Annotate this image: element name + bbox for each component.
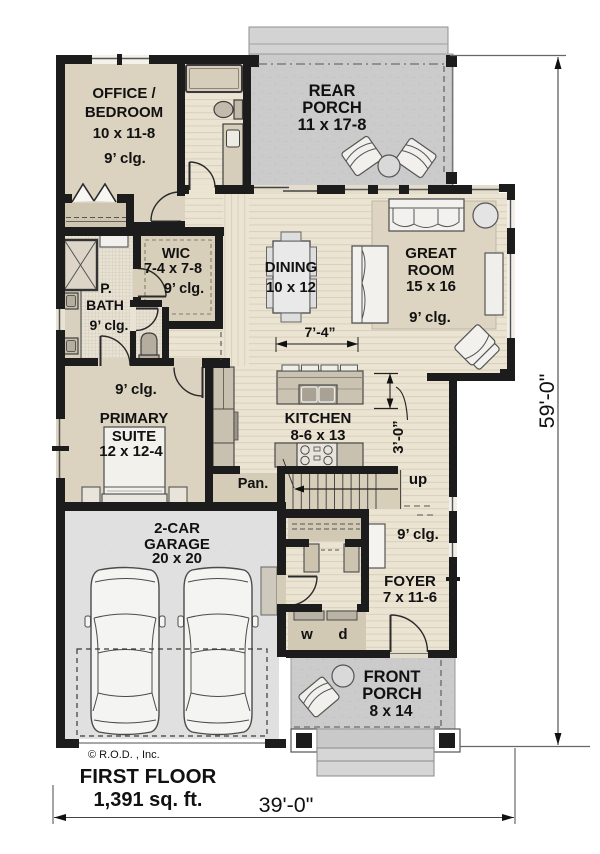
svg-text:9’ clg.: 9’ clg. [409, 309, 451, 326]
svg-text:FIRST FLOOR: FIRST FLOOR [80, 765, 217, 788]
svg-text:GREAT: GREAT [405, 245, 456, 262]
svg-text:WIC: WIC [162, 246, 191, 262]
svg-text:12 x 12-4: 12 x 12-4 [99, 443, 163, 460]
svg-text:8 x 14: 8 x 14 [369, 703, 412, 720]
svg-text:7-4 x 7-8: 7-4 x 7-8 [144, 261, 202, 277]
svg-text:39'-0": 39'-0" [259, 793, 314, 817]
svg-text:1,391 sq. ft.: 1,391 sq. ft. [94, 789, 203, 811]
svg-text:9’ clg.: 9’ clg. [115, 381, 157, 398]
svg-text:PORCH: PORCH [362, 685, 422, 703]
svg-text:PRIMARY: PRIMARY [100, 410, 169, 427]
svg-text:© R.O.D. , Inc.: © R.O.D. , Inc. [88, 749, 160, 761]
svg-text:3’-0”: 3’-0” [390, 420, 407, 453]
svg-text:BATH: BATH [86, 297, 124, 313]
svg-text:d: d [338, 626, 347, 643]
svg-text:9’ clg.: 9’ clg. [164, 281, 204, 297]
svg-text:DINING: DINING [265, 259, 318, 276]
svg-text:15 x 16: 15 x 16 [406, 278, 456, 295]
svg-text:9’ clg.: 9’ clg. [104, 150, 146, 167]
svg-text:ROOM: ROOM [408, 262, 455, 279]
svg-text:BEDROOM: BEDROOM [85, 104, 163, 121]
svg-text:8-6 x 13: 8-6 x 13 [290, 427, 345, 444]
svg-text:KITCHEN: KITCHEN [285, 410, 352, 427]
svg-text:2-CAR: 2-CAR [154, 520, 200, 537]
svg-text:PORCH: PORCH [302, 99, 362, 117]
svg-text:59'-0": 59'-0" [535, 374, 559, 429]
svg-text:9’ clg.: 9’ clg. [397, 526, 439, 543]
svg-text:OFFICE /: OFFICE / [92, 85, 156, 102]
svg-text:FOYER: FOYER [384, 573, 436, 590]
svg-text:FRONT: FRONT [364, 668, 421, 686]
svg-text:up: up [409, 471, 427, 488]
svg-text:P.: P. [100, 280, 111, 296]
svg-text:w: w [300, 626, 313, 643]
svg-text:10 x 12: 10 x 12 [266, 279, 316, 296]
svg-text:7’-4”: 7’-4” [304, 324, 335, 340]
svg-text:10 x 11-8: 10 x 11-8 [93, 125, 156, 142]
svg-text:9’ clg.: 9’ clg. [90, 317, 129, 333]
svg-text:REAR: REAR [309, 82, 356, 100]
svg-text:7 x 11-6: 7 x 11-6 [383, 589, 437, 606]
svg-text:Pan.: Pan. [238, 476, 269, 492]
svg-text:20 x 20: 20 x 20 [152, 550, 202, 567]
svg-text:11 x 17-8: 11 x 17-8 [298, 116, 367, 134]
